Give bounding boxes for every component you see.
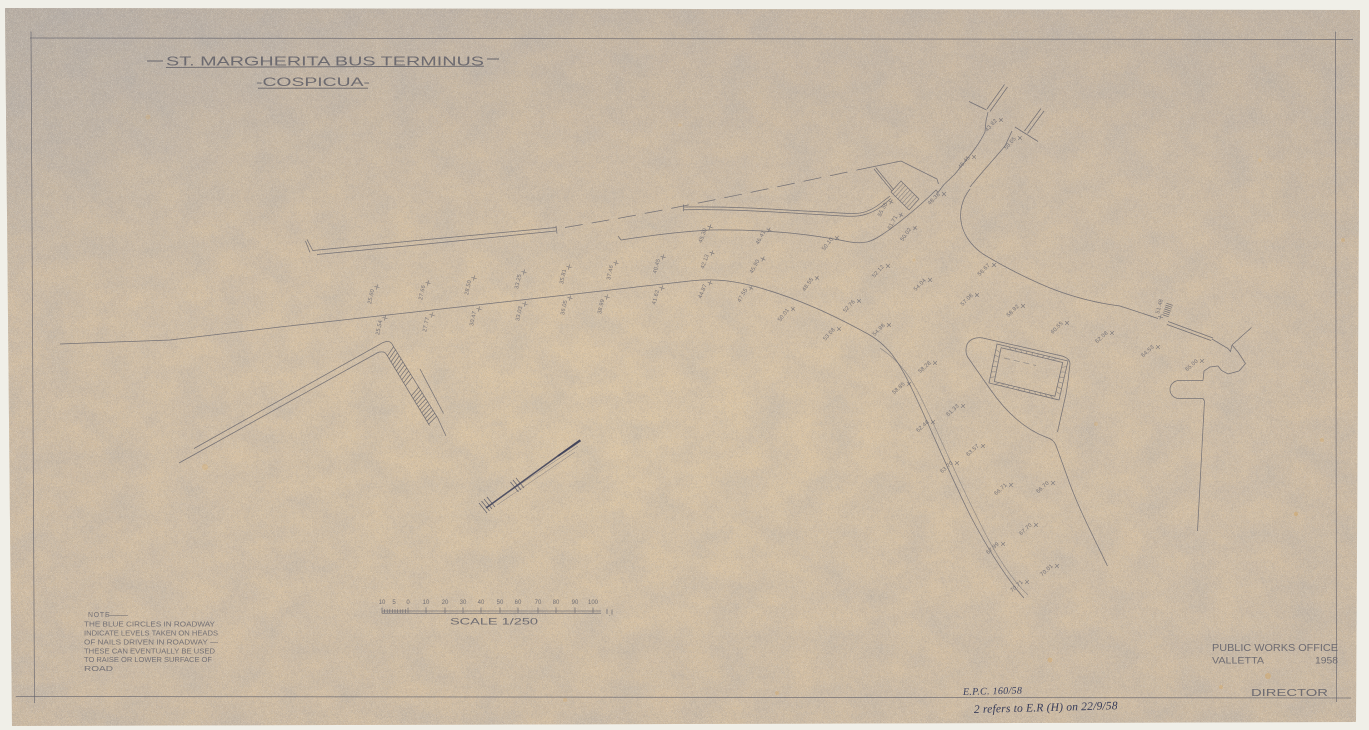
svg-text:1958: 1958 <box>1315 656 1338 666</box>
svg-text:THE BLUE CIRCLES IN ROADWA: THE BLUE CIRCLES IN ROADWAY <box>84 622 215 629</box>
svg-text:ROAD: ROAD <box>84 666 113 673</box>
svg-text:20: 20 <box>442 600 449 606</box>
svg-text:-COSPICUA-: -COSPICUA- <box>256 75 370 89</box>
svg-text:DIRECTOR: DIRECTOR <box>1251 688 1328 699</box>
svg-text:100: 100 <box>588 600 599 606</box>
svg-text:50: 50 <box>497 600 504 606</box>
svg-text:10: 10 <box>423 600 430 606</box>
svg-text:SCALE 1/250: SCALE 1/250 <box>450 617 538 627</box>
svg-text:NOTE: NOTE <box>88 612 110 619</box>
svg-text:90: 90 <box>572 600 579 606</box>
svg-text:10: 10 <box>379 600 386 606</box>
svg-text:40: 40 <box>478 600 485 606</box>
svg-text:80: 80 <box>553 600 560 606</box>
svg-text:VALLETTA: VALLETTA <box>1212 656 1265 666</box>
svg-text:30: 30 <box>460 600 467 606</box>
svg-text:OF NAILS DRIVEN IN ROADWAY: OF NAILS DRIVEN IN ROADWAY — <box>84 640 218 647</box>
svg-text:60: 60 <box>515 600 522 606</box>
svg-text:PUBLIC WORKS OFFICE: PUBLIC WORKS OFFICE <box>1212 643 1339 654</box>
svg-text:70: 70 <box>535 600 542 606</box>
svg-text:INDICATE LEVELS TAKEN ON H: INDICATE LEVELS TAKEN ON HEADS <box>84 631 218 638</box>
svg-text:THESE CAN EVENTUALLY BE US: THESE CAN EVENTUALLY BE USED <box>84 649 215 656</box>
svg-text:E.P.C. 160/58: E.P.C. 160/58 <box>962 685 1023 698</box>
svg-text:TO RAISE OR LOWER SURFACE: TO RAISE OR LOWER SURFACE OF <box>84 657 212 664</box>
